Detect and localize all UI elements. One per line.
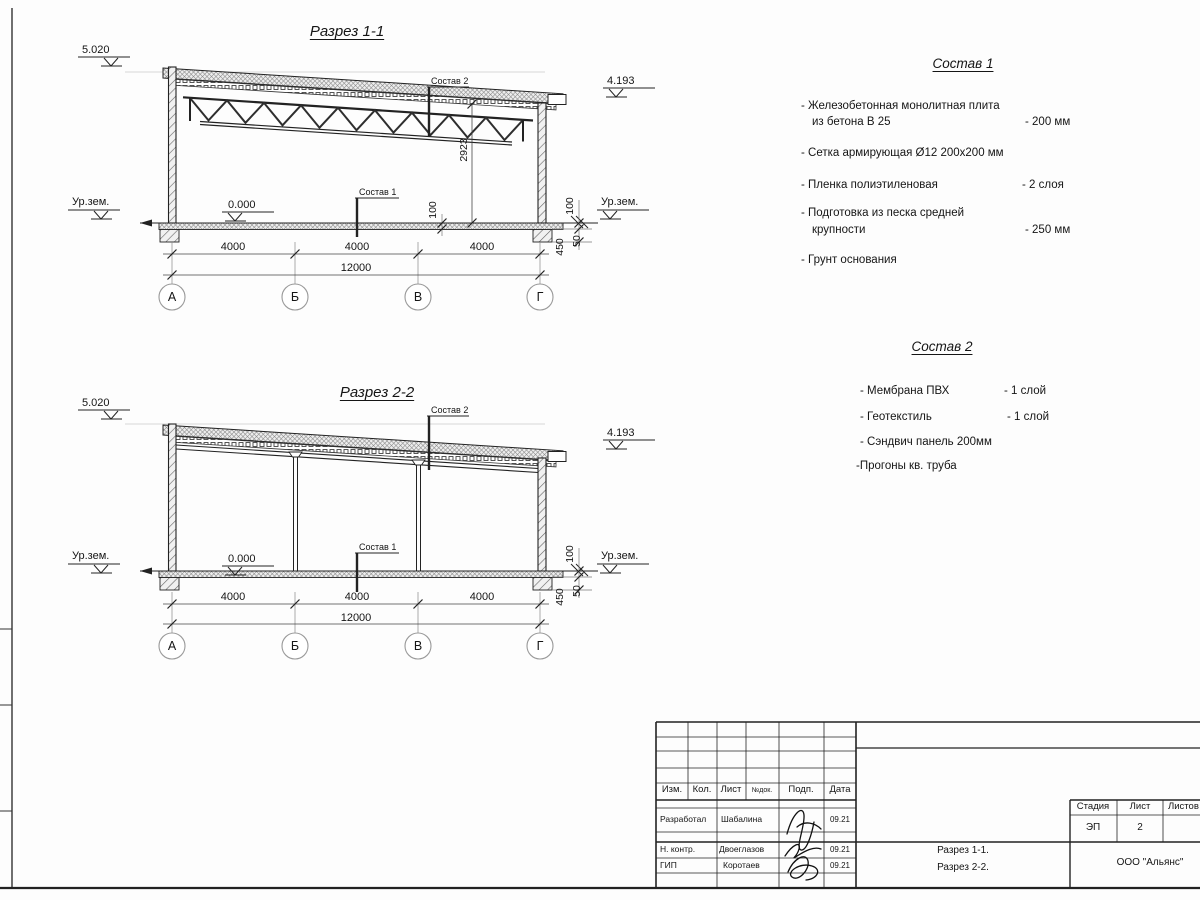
section2-footing-right (533, 578, 552, 591)
tb-row3-role: ГИП (660, 861, 677, 871)
tb-row1-role: Разработал (660, 815, 706, 825)
section2-axis-g: Г (537, 639, 544, 653)
drawing-sheet: { "section1": { "title": "Разрез 1-1", "… (0, 0, 1200, 900)
sostav2-item2-value: - 1 слой (1007, 411, 1049, 424)
sostav1-item4-line2: крупности (812, 224, 865, 237)
section2-column-g (538, 458, 546, 571)
section2-span-1: 4000 (221, 591, 245, 604)
tb-sheet-value: 2 (1137, 822, 1143, 834)
tb-sheet-label: Лист (1130, 802, 1151, 813)
section1-ground-left-label: Ур.зем. (72, 196, 109, 209)
section1-axis-b: Б (291, 290, 299, 304)
section2-axis-v: В (414, 639, 422, 653)
section2-axis-a: А (168, 639, 176, 653)
section1-dim-100-right: 100 (564, 197, 576, 215)
tb-row3-date: 09.21 (830, 861, 850, 870)
sostav1-item1-value: - 200 мм (1025, 116, 1070, 129)
section2-axis-circles (159, 633, 553, 659)
tb-stage-value: ЭП (1086, 822, 1100, 834)
section2-roof (163, 425, 566, 467)
sostav1-item2-line1: - Сетка армирующая Ø12 200х200 мм (801, 147, 1004, 160)
section1-height-dim (468, 100, 477, 228)
tb-col-izm: Изм. (662, 785, 682, 796)
tb-row1-date: 09.21 (830, 815, 850, 824)
section1-footing-right (533, 230, 552, 243)
section1-footing-left (160, 230, 179, 243)
section1-total-dim: 12000 (341, 262, 372, 275)
sostav1-item1-line1: - Железобетонная монолитная плита (801, 100, 1000, 113)
section2-column-v (412, 460, 425, 571)
section1-level-right: 4.193 (607, 75, 635, 88)
signature-korotaev (788, 857, 818, 880)
section1-dim-50: 50 (571, 235, 583, 247)
section1-dim-2923: 2923 (458, 138, 470, 161)
section1-axis-v: В (414, 290, 422, 304)
section2-column-a (169, 424, 177, 571)
section2-column-b (289, 452, 302, 571)
signature-dvoeglazov (785, 845, 821, 858)
signature-shabalina (787, 811, 821, 851)
tb-row3-name: Коротаев (723, 861, 760, 871)
section1-axis-a: А (168, 290, 176, 304)
tb-row2-role: Н. контр. (660, 845, 695, 855)
section2-dim-50: 50 (571, 585, 583, 597)
section2-ground-right-label: Ур.зем. (601, 550, 638, 563)
section2-callout-sostav2: Состав 2 (431, 405, 468, 415)
sostav1-item4-value: - 250 мм (1025, 224, 1070, 237)
section2-title: Разрез 2-2 (340, 384, 414, 401)
sostav2-item1-value: - 1 слой (1004, 385, 1046, 398)
section1-ground-right-label: Ур.зем. (601, 196, 638, 209)
section1-axis-g: Г (537, 290, 544, 304)
section1-level-top: 5.020 (82, 44, 110, 57)
section2-span-2: 4000 (345, 591, 369, 604)
tb-sheets-label: Листов (1168, 802, 1199, 813)
section2-total-dim: 12000 (341, 612, 372, 625)
section2-footing-left (160, 578, 179, 591)
sostav2-item2-text: - Геотекстиль (860, 411, 932, 424)
tb-stage-label: Стадия (1077, 802, 1109, 813)
sheet-frame (0, 8, 1200, 888)
sostav2-title: Состав 2 (912, 339, 973, 355)
section2-floor-slab (159, 571, 563, 578)
section2-level-right: 4.193 (607, 427, 635, 440)
sostav1-item3-line1: - Пленка полиэтиленовая (801, 179, 938, 192)
section2-ground-left-label: Ур.зем. (72, 550, 109, 563)
tb-col-list: Лист (721, 785, 742, 796)
section1-dim-100-floor: 100 (427, 201, 439, 219)
section1-callout-sostav2: Состав 2 (431, 76, 468, 86)
sostav1-item4-line1: - Подготовка из песка средней (801, 207, 964, 220)
tb-row1-name: Шабалина (721, 815, 762, 825)
tb-row2-date: 09.21 (830, 845, 850, 854)
section2-dim-450: 450 (554, 588, 566, 606)
signatures (785, 811, 821, 880)
sostav1-item1-line2: из бетона В 25 (812, 116, 891, 129)
section1-column-a (169, 67, 177, 223)
section2-span-3: 4000 (470, 591, 494, 604)
section1-callout-sostav1: Состав 1 (359, 187, 396, 197)
tb-col-kol: Кол. (693, 785, 712, 796)
section1-dim-450: 450 (554, 238, 566, 256)
section2-dim-100-right: 100 (564, 545, 576, 563)
sostav2-item1-text: - Мембрана ПВХ (860, 385, 949, 398)
tb-col-ndok: №док. (752, 787, 773, 795)
tb-col-podp: Подп. (788, 785, 813, 796)
section1-span-1: 4000 (221, 241, 245, 254)
tb-col-data: Дата (829, 785, 850, 796)
section1-floor-slab (159, 223, 563, 230)
section1-title: Разрез 1-1 (310, 23, 384, 40)
tb-doc-title-line1: Разрез 1-1. (937, 845, 989, 857)
section1-axis-circles (159, 284, 553, 310)
tb-doc-title-line2: Разрез 2-2. (937, 862, 989, 874)
sostav1-item3-value: - 2 слоя (1022, 179, 1064, 192)
section1-level-zero: 0.000 (228, 199, 256, 212)
sostav1-item5-line1: - Грунт основания (801, 254, 897, 267)
section2-axis-b: Б (291, 639, 299, 653)
section1-span-3: 4000 (470, 241, 494, 254)
tb-company: ООО "Альянс" (1117, 857, 1184, 869)
sostav2-item3-text: - Сэндвич панель 200мм (860, 436, 992, 449)
section1-span-2: 4000 (345, 241, 369, 254)
section1-column-g (538, 103, 546, 223)
sostav2-item4-text: -Прогоны кв. труба (856, 460, 957, 473)
section2-level-top: 5.020 (82, 397, 110, 410)
tb-row2-name: Двоеглазов (719, 845, 764, 855)
section2-level-zero: 0.000 (228, 553, 256, 566)
drawing-linework (0, 0, 1200, 900)
section2-callout-sostav1: Состав 1 (359, 542, 396, 552)
sostav1-title: Состав 1 (933, 56, 994, 72)
